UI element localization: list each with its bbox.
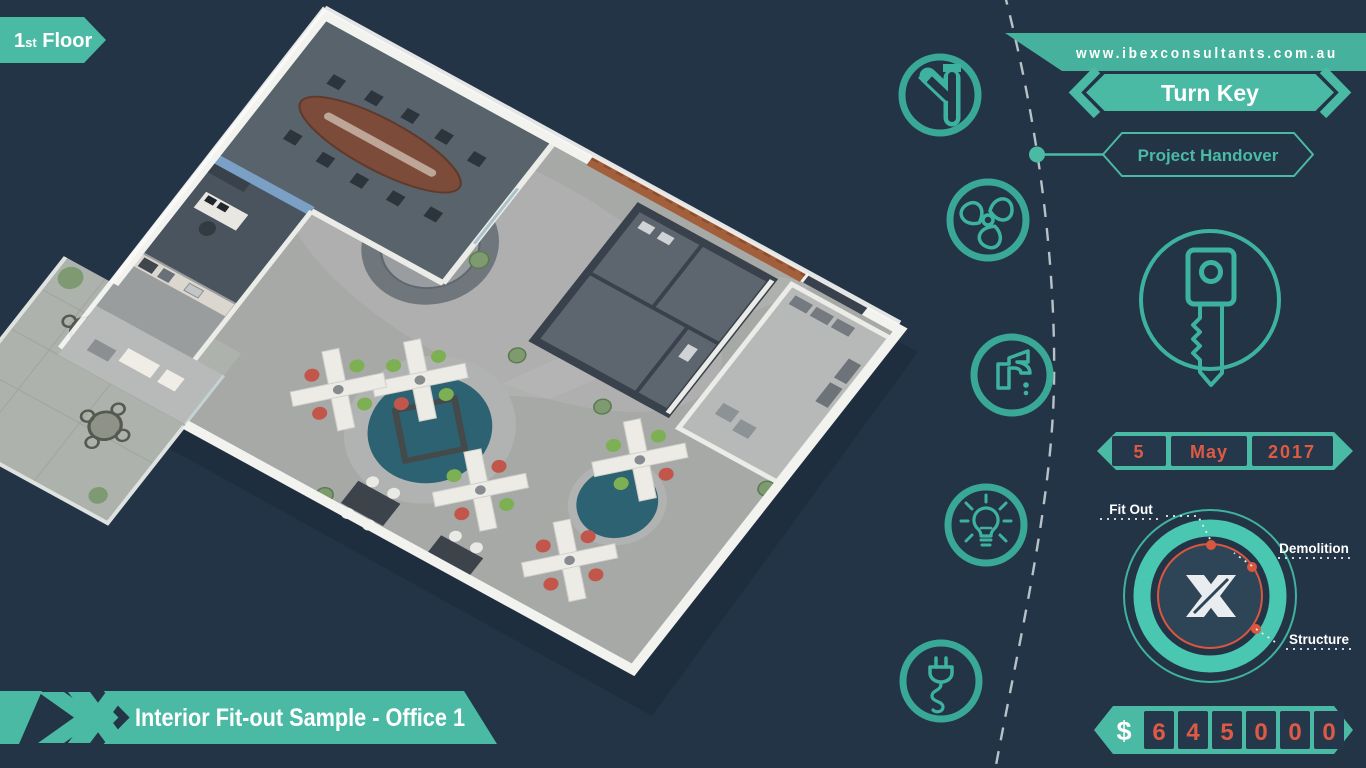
floor-badge: 1st Floor <box>0 17 106 63</box>
handover-label: Project Handover <box>1029 133 1313 176</box>
electrical-plug-icon <box>903 643 979 719</box>
ring-label-fit-out: Fit Out <box>1109 502 1153 517</box>
floor-suffix: st <box>25 35 37 50</box>
slide: 1st Floor www.ibexconsultants.com.au Tur… <box>0 0 1366 768</box>
caption-title: Interior Fit-out Sample - Office 1 <box>135 704 465 732</box>
caption-banner: Interior Fit-out Sample - Office 1 <box>0 691 497 744</box>
turn-key-icon <box>1141 231 1279 385</box>
floor-plan-render <box>0 0 918 768</box>
price-digit: 5 <box>1220 719 1233 746</box>
service-icons <box>902 57 1050 719</box>
floor-word: Floor <box>42 30 92 52</box>
lighting-bulb-icon <box>948 487 1024 563</box>
website-url: www.ibexconsultants.com.au <box>1075 45 1338 62</box>
scope-ring-chart: Fit Out Demolition Structure <box>1100 502 1352 682</box>
website-banner: www.ibexconsultants.com.au <box>1005 33 1366 71</box>
price-digit: 6 <box>1152 719 1165 746</box>
demolition-dot <box>1247 562 1257 572</box>
date-year: 2017 <box>1268 442 1316 462</box>
fit-out-dot <box>1206 540 1216 550</box>
date-day: 5 <box>1133 442 1144 462</box>
currency-symbol: $ <box>1116 716 1131 746</box>
price-digit: 4 <box>1186 719 1200 746</box>
price-digit: 0 <box>1288 719 1301 746</box>
ring-label-demolition: Demolition <box>1279 541 1349 556</box>
connector-dot <box>1029 147 1045 163</box>
milestone-banner: Turn Key <box>1075 70 1345 115</box>
price-digit: 0 <box>1254 719 1267 746</box>
price-digit: 0 <box>1322 719 1335 746</box>
ring-label-structure: Structure <box>1289 632 1350 647</box>
date-month: May <box>1190 442 1228 462</box>
price-banner: $ 6 4 5 0 0 0 <box>1094 706 1353 754</box>
water-tap-icon <box>974 337 1050 413</box>
handover-date: 5 May 2017 <box>1097 432 1353 470</box>
plumbing-pipe-icon <box>902 57 978 133</box>
milestone-title: Turn Key <box>1161 80 1259 106</box>
floor-number: 1 <box>14 30 25 52</box>
handover-text: Project Handover <box>1138 146 1279 165</box>
hvac-fan-icon <box>950 182 1026 258</box>
